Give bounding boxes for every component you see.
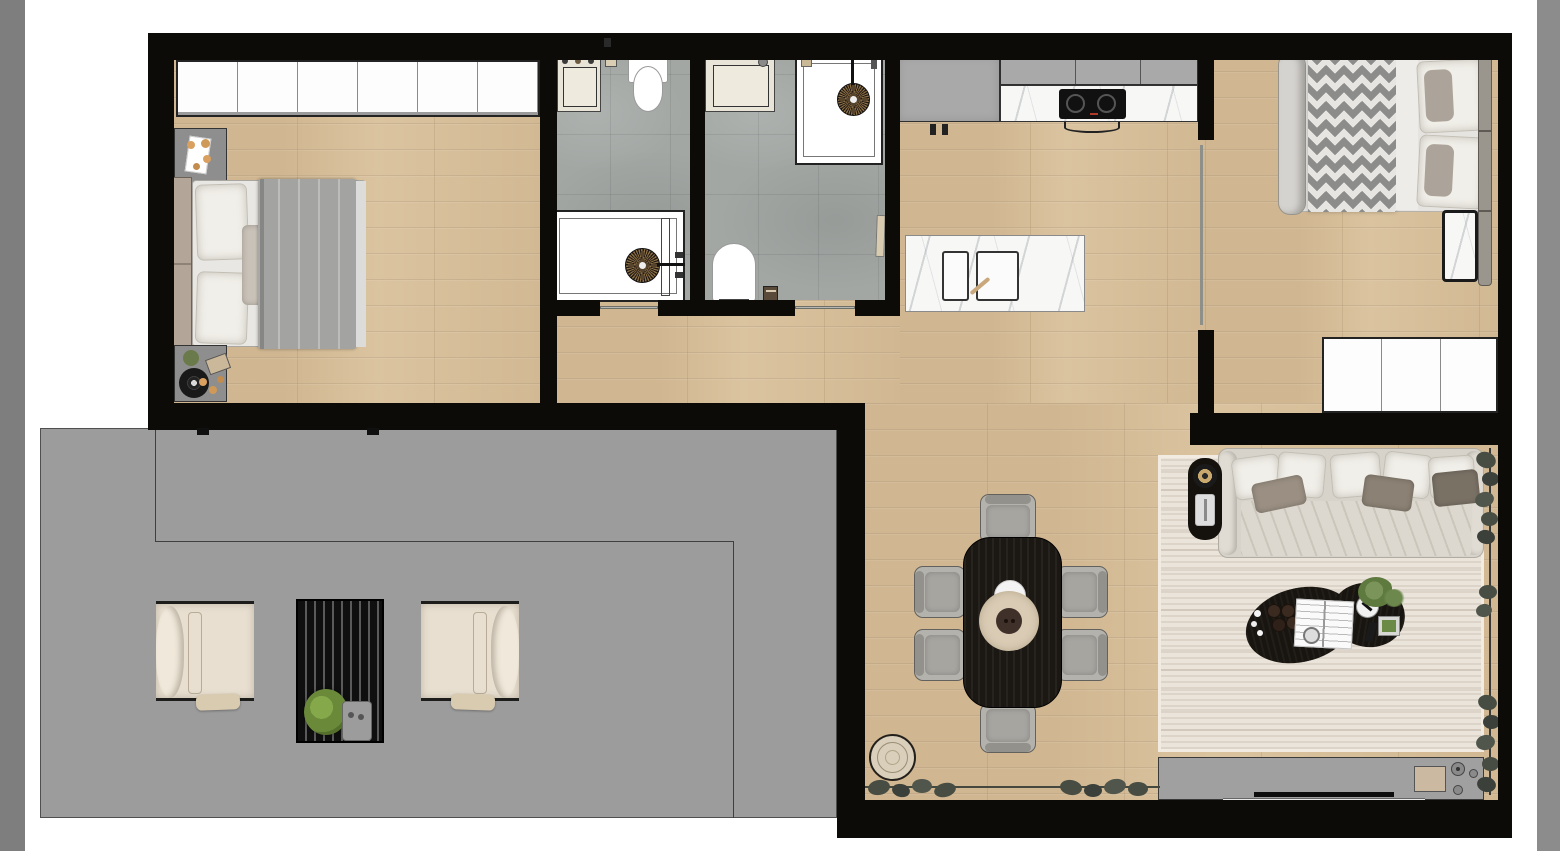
bedroom2-wardrobe	[1322, 337, 1498, 413]
kitchen-island	[905, 235, 1085, 312]
speaker-knob	[1451, 762, 1465, 776]
coffee-table	[1245, 583, 1405, 663]
window-plant	[1481, 512, 1498, 526]
moss-tray	[1378, 616, 1400, 636]
terrace-armchair-right-ottoman	[451, 693, 496, 711]
terrace	[40, 428, 837, 818]
bath1-rain-shower-head	[625, 248, 660, 283]
bedroom2-bed	[1280, 56, 1492, 212]
tv-sideboard	[1158, 757, 1484, 800]
media-box	[1414, 766, 1446, 792]
terrace-tray	[342, 701, 372, 741]
door-threshold-mark	[197, 428, 209, 435]
dining-chair-right-2	[1056, 629, 1108, 681]
terrace-armchair-right	[421, 601, 519, 701]
terrace-armchair-left	[156, 601, 254, 701]
wall-bathrooms-south-a	[540, 300, 600, 316]
bath2-toilet	[712, 243, 756, 302]
wall-left	[148, 33, 174, 428]
wall-bedroom1-bathrooms	[540, 33, 557, 403]
bath1-shower-glass-door	[661, 218, 670, 296]
sofa	[1218, 448, 1484, 558]
serving-bowl	[996, 608, 1022, 634]
door-threshold-mark	[367, 428, 379, 435]
bed2-rolled-blanket	[1278, 53, 1306, 215]
kitchen-handle	[930, 124, 936, 135]
bed1-duvet	[258, 179, 356, 349]
wall-top	[148, 33, 1512, 60]
bed2-sheet	[1396, 58, 1418, 210]
terrace-edge-line-horizontal	[155, 541, 733, 542]
dining-table	[963, 537, 1062, 708]
bathroom1-door-leaf	[600, 306, 658, 309]
dining-chair-bottom	[980, 703, 1036, 753]
hallway-floor	[550, 300, 900, 415]
cooktop	[1059, 89, 1126, 119]
window-plant	[1084, 784, 1102, 797]
wall-bathrooms-south-b	[658, 300, 795, 316]
island-sink-basin-right	[976, 251, 1019, 301]
bedroom1-wardrobe	[176, 60, 540, 117]
bath1-toilet-bowl	[633, 66, 663, 112]
dining-chair-left-1	[914, 566, 966, 618]
kitchen-handle	[942, 124, 948, 135]
floor-plan-canvas	[0, 0, 1560, 851]
bath2-shower	[795, 55, 883, 165]
bed1-sheet-edge	[356, 181, 366, 347]
wall-between-bathrooms	[690, 33, 705, 316]
bedroom2-side-table	[1442, 210, 1478, 282]
kitchen-counter	[1000, 85, 1198, 122]
bed2-headboard	[1478, 52, 1492, 286]
window-plant	[1482, 472, 1499, 486]
window-plant	[1128, 782, 1148, 796]
window-plant	[912, 779, 932, 793]
kitchen-hood-arc	[1064, 122, 1120, 133]
espresso-cup	[1267, 604, 1281, 618]
wall-bathroom2-kitchen	[885, 33, 900, 316]
window-plant	[1482, 757, 1499, 771]
bath1-vanity	[557, 55, 601, 112]
left-frame-bar	[0, 0, 25, 851]
right-frame-bar	[1537, 0, 1560, 851]
sofa-pillow-taupe	[1361, 474, 1415, 513]
bedroom1-nightstand-bottom	[174, 345, 227, 402]
speaker-knob	[1453, 785, 1463, 795]
bath1-shower-arm	[657, 263, 685, 266]
terrace-edge-line-vertical-left	[155, 429, 156, 541]
bath2-rain-shower-head	[837, 83, 870, 116]
serving-platter	[979, 591, 1039, 651]
terrace-armchair-left-ottoman	[196, 693, 241, 711]
bathroom2-door-leaf	[795, 306, 855, 309]
bedroom1-bed	[170, 177, 368, 350]
sofa-side-table	[1188, 458, 1222, 540]
wall-kitchen-bedroom2-upper	[1198, 33, 1214, 140]
bed2-pillow-bottom	[1416, 134, 1486, 209]
bath2-vanity	[705, 55, 775, 112]
wall-bedroom2-south	[1190, 413, 1498, 445]
wall-fitting-mark	[604, 38, 611, 47]
bed2-pillow-top	[1416, 58, 1486, 133]
tv-soundbar	[1254, 792, 1394, 797]
terrace-edge-line-vertical-right	[733, 541, 734, 818]
bed2-chevron-runner	[1308, 56, 1396, 212]
speaker-knob	[1469, 769, 1478, 778]
window-plant	[1479, 585, 1497, 599]
sofa-pillow-taupe	[1431, 469, 1480, 508]
terrace-fire-table	[296, 599, 384, 743]
kitchen-tall-cabinet	[897, 55, 1000, 122]
wine-glass	[1195, 494, 1215, 526]
island-sink-basin-left	[942, 251, 969, 301]
turntable-record	[1193, 464, 1217, 488]
wall-upper-band-bottom	[148, 403, 865, 430]
wall-living-west	[837, 403, 865, 838]
dining-chair-left-2	[914, 629, 966, 681]
wall-bathrooms-south-c	[855, 300, 900, 316]
jute-pouf	[869, 734, 916, 781]
bedroom2-door-leaf	[1200, 145, 1203, 325]
bath1-shower	[551, 210, 685, 302]
open-book	[1294, 599, 1354, 650]
wall-right	[1498, 33, 1512, 838]
wall-living-south	[837, 800, 1512, 838]
nightstand-plant	[183, 350, 199, 366]
glass-ashtray	[1303, 627, 1320, 644]
dining-chair-right-1	[1056, 566, 1108, 618]
espresso-cup	[1272, 618, 1286, 632]
